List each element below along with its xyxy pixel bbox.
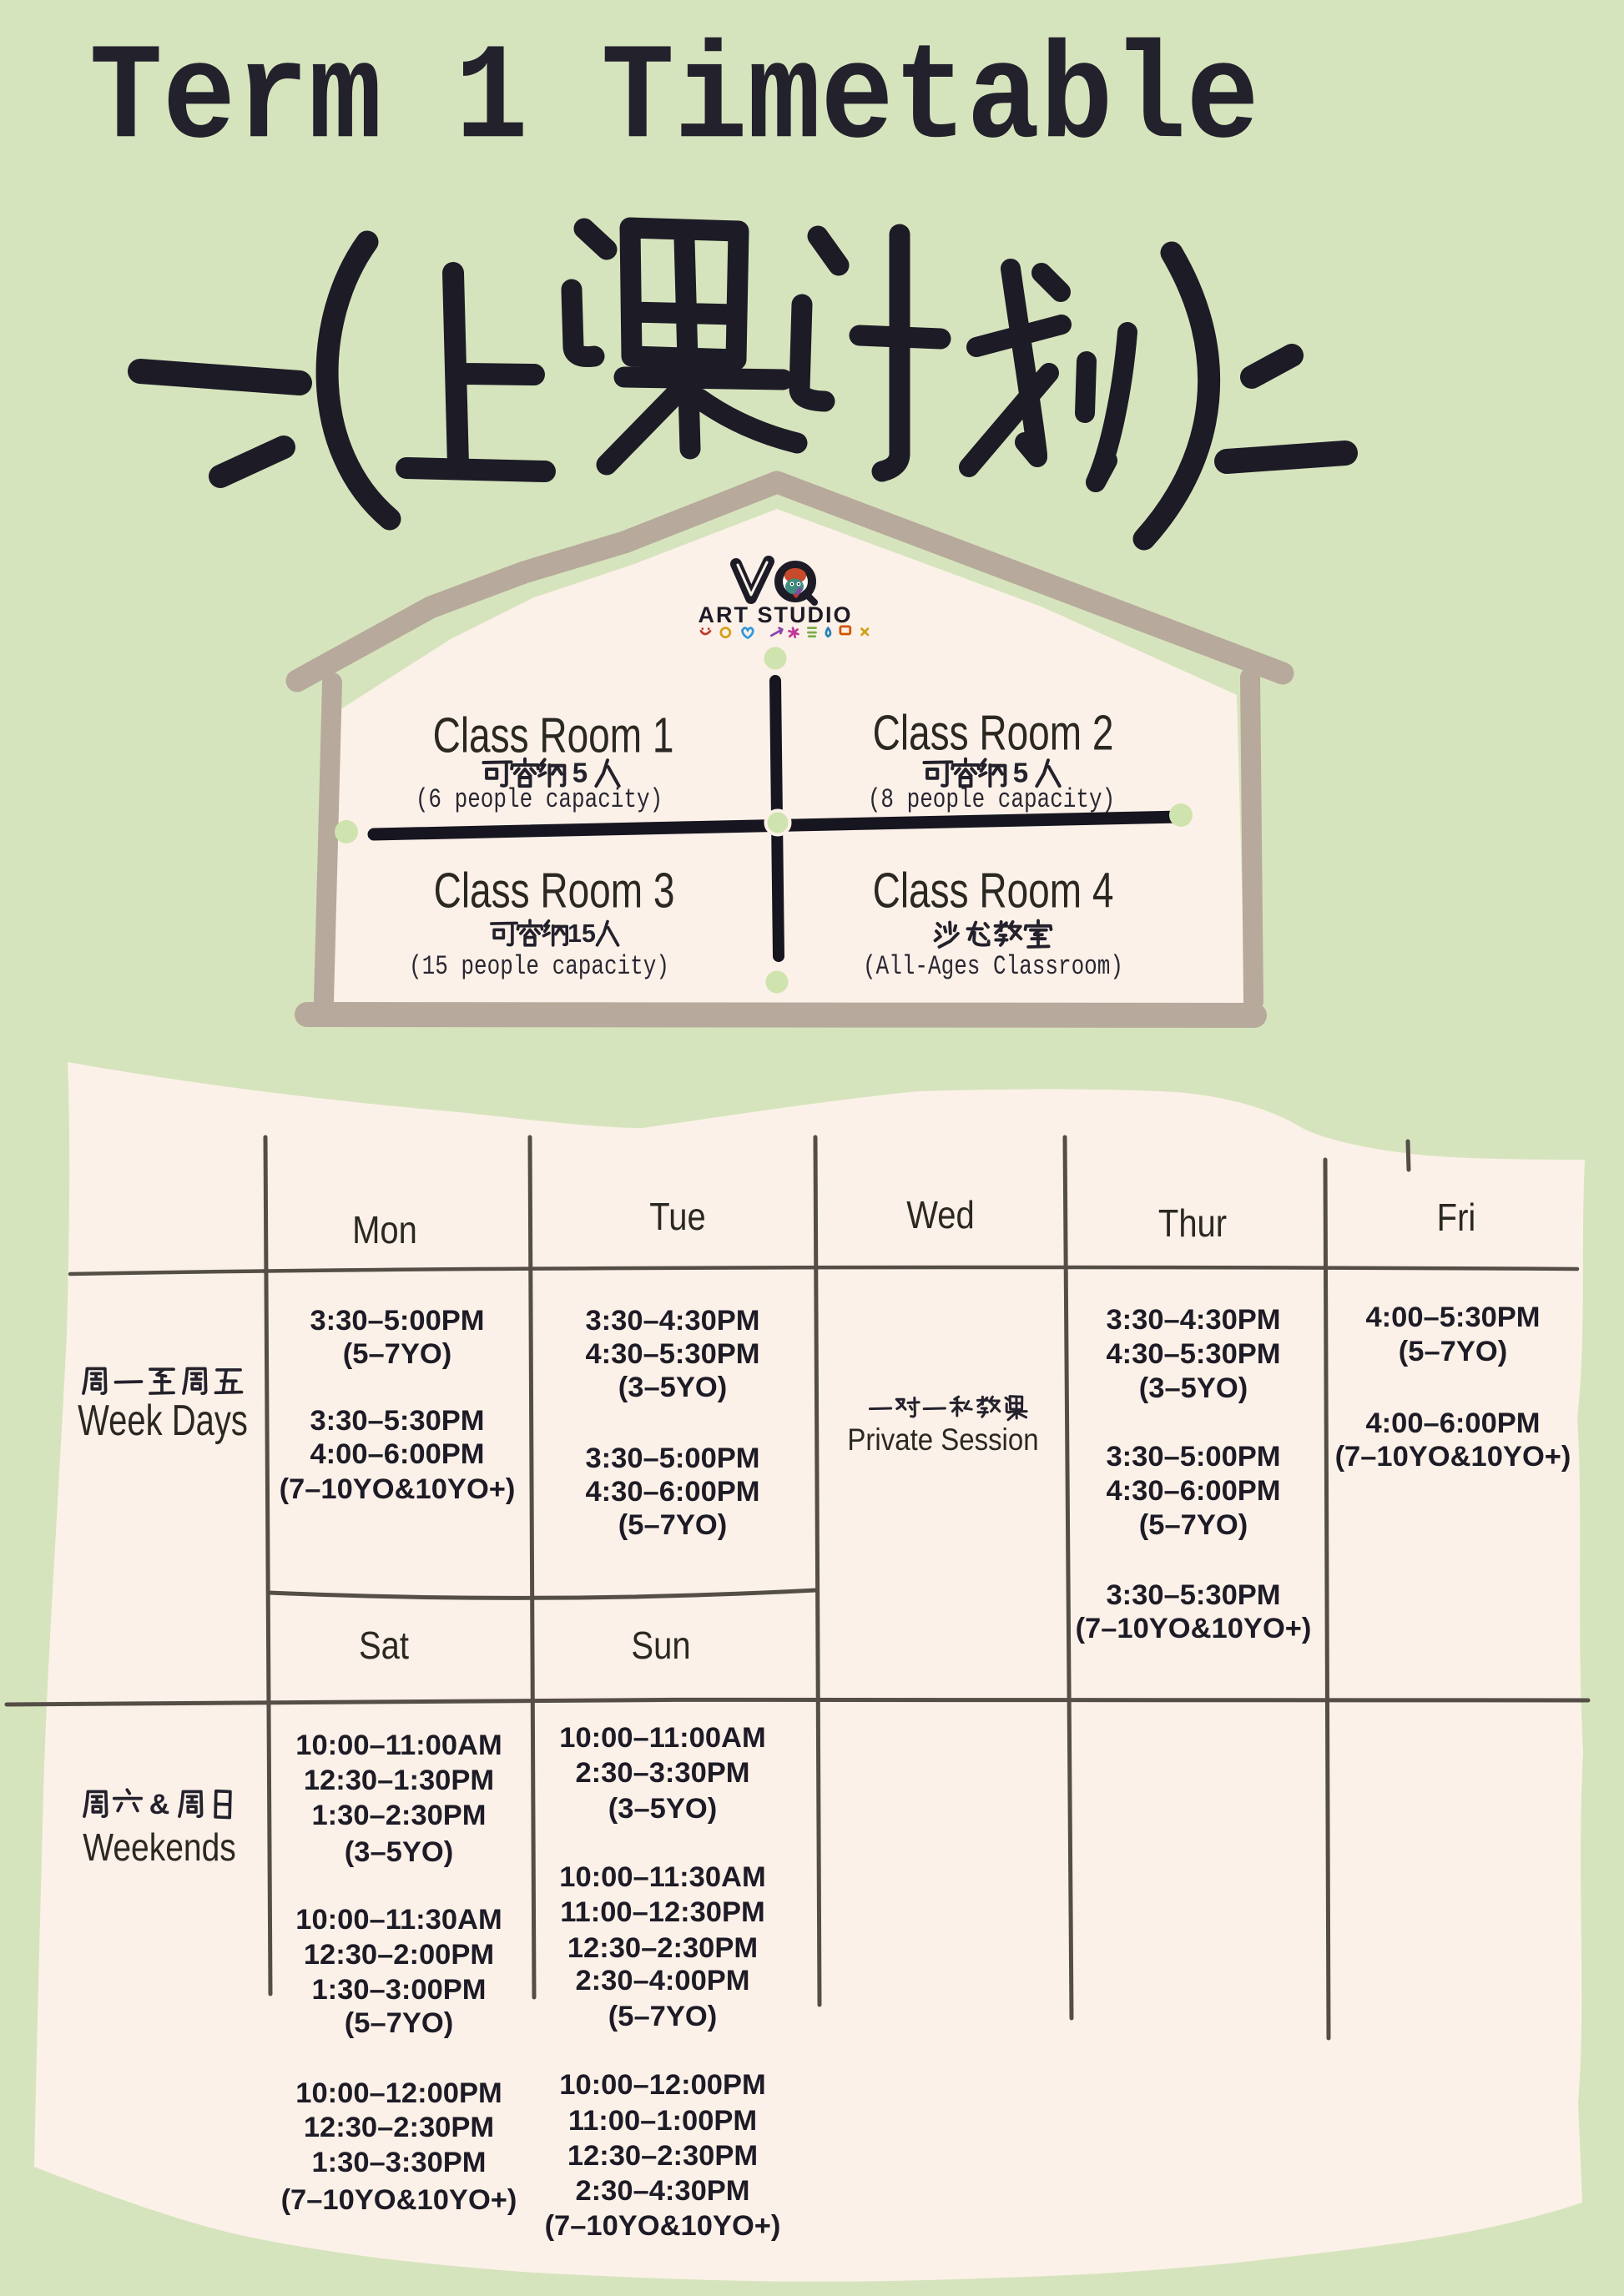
svg-text:1:30–3:00PM: 1:30–3:00PM [311,1974,486,2006]
svg-text:ART STUDIO: ART STUDIO [699,602,853,627]
svg-text:12:30–2:30PM: 12:30–2:30PM [304,2112,494,2143]
svg-text:(3–5YO): (3–5YO) [1139,1372,1248,1404]
svg-text:(3–5YO): (3–5YO) [345,1836,453,1868]
svg-text:Term 1 Timetable: Term 1 Timetable [89,23,1259,178]
svg-text:Fri: Fri [1437,1196,1476,1239]
svg-text:Tue: Tue [649,1196,705,1238]
svg-text:4:30–5:30PM: 4:30–5:30PM [1106,1338,1280,1370]
svg-text:2:30–4:30PM: 2:30–4:30PM [575,2175,749,2207]
svg-text:(3–5YO): (3–5YO) [608,1793,717,1825]
svg-text:(5–7YO): (5–7YO) [1399,1336,1507,1367]
svg-text:10:00–11:00AM: 10:00–11:00AM [295,1730,502,1761]
svg-text:Wed: Wed [906,1194,975,1236]
svg-text:2:30–3:30PM: 2:30–3:30PM [575,1757,749,1789]
svg-text:Class Room 2: Class Room 2 [873,706,1114,761]
svg-text:(5–7YO): (5–7YO) [343,1338,451,1370]
svg-text:(7–10YO&10YO+): (7–10YO&10YO+) [1335,1441,1571,1473]
svg-text:Mon: Mon [352,1209,417,1251]
svg-text:10:00–12:00PM: 10:00–12:00PM [559,2069,765,2101]
svg-text:12:30–1:30PM: 12:30–1:30PM [304,1765,494,1796]
svg-text:3:30–5:30PM: 3:30–5:30PM [1106,1579,1280,1611]
svg-text:Class Room 1: Class Room 1 [433,708,674,763]
svg-text:10:00–11:30AM: 10:00–11:30AM [295,1904,502,1936]
svg-text:10:00–12:00PM: 10:00–12:00PM [295,2077,502,2109]
svg-text:Sat: Sat [359,1624,409,1667]
svg-text:Thur: Thur [1158,1202,1227,1245]
svg-text:12:30–2:30PM: 12:30–2:30PM [567,2140,758,2172]
svg-text:(5–7YO): (5–7YO) [345,2007,453,2039]
svg-text:(7–10YO&10YO+): (7–10YO&10YO+) [1076,1613,1312,1644]
svg-text:4:30–5:30PM: 4:30–5:30PM [585,1338,759,1370]
svg-text:4:00–6:00PM: 4:00–6:00PM [310,1438,484,1470]
svg-text:3:30–4:30PM: 3:30–4:30PM [585,1305,759,1337]
svg-text:Sun: Sun [631,1624,690,1667]
svg-text:Class Room 3: Class Room 3 [434,864,675,919]
svg-text:1:30–3:30PM: 1:30–3:30PM [311,2147,486,2178]
svg-text:4:00–6:00PM: 4:00–6:00PM [1365,1407,1540,1439]
svg-text:(7–10YO&10YO+): (7–10YO&10YO+) [280,1473,516,1505]
svg-text:3:30–5:00PM: 3:30–5:00PM [310,1305,484,1337]
svg-text:3:30–4:30PM: 3:30–4:30PM [1106,1304,1280,1336]
svg-text:(All-Ages Classroom): (All-Ages Classroom) [863,950,1123,982]
svg-text:Class Room 4: Class Room 4 [873,864,1114,919]
svg-text:(7–10YO&10YO+): (7–10YO&10YO+) [281,2184,517,2216]
svg-text:(7–10YO&10YO+): (7–10YO&10YO+) [545,2210,781,2242]
svg-text:(6 people capacity): (6 people capacity) [416,783,663,815]
svg-text:Private Session: Private Session [847,1422,1038,1457]
svg-text:12:30–2:30PM: 12:30–2:30PM [567,1932,758,1964]
svg-text:(5–7YO): (5–7YO) [618,1509,727,1541]
svg-text:12:30–2:00PM: 12:30–2:00PM [304,1939,494,1971]
svg-text:(8 people capacity): (8 people capacity) [868,783,1115,815]
svg-text:4:00–5:30PM: 4:00–5:30PM [1365,1302,1540,1333]
svg-text:Week Days: Week Days [78,1396,248,1444]
svg-text:&: & [149,1789,170,1820]
svg-text:(15 people capacity): (15 people capacity) [409,950,669,982]
svg-text:4:30–6:00PM: 4:30–6:00PM [1106,1475,1280,1507]
svg-text:11:00–1:00PM: 11:00–1:00PM [568,2105,757,2137]
svg-text:3:30–5:30PM: 3:30–5:30PM [310,1405,484,1437]
svg-text:1:30–2:30PM: 1:30–2:30PM [311,1800,486,1831]
svg-text:15: 15 [567,919,596,948]
svg-text:4:30–6:00PM: 4:30–6:00PM [585,1476,759,1508]
svg-text:3:30–5:00PM: 3:30–5:00PM [585,1443,759,1474]
svg-text:Weekends: Weekends [83,1826,236,1870]
svg-text:2:30–4:00PM: 2:30–4:00PM [575,1965,749,1996]
svg-text:10:00–11:30AM: 10:00–11:30AM [559,1861,765,1893]
svg-text:11:00–12:30PM: 11:00–12:30PM [560,1896,765,1928]
svg-text:(5–7YO): (5–7YO) [1139,1509,1248,1541]
svg-text:10:00–11:00AM: 10:00–11:00AM [559,1722,765,1754]
svg-text:(3–5YO): (3–5YO) [618,1372,727,1403]
svg-text:3:30–5:00PM: 3:30–5:00PM [1106,1441,1280,1473]
svg-text:(5–7YO): (5–7YO) [608,2001,717,2032]
